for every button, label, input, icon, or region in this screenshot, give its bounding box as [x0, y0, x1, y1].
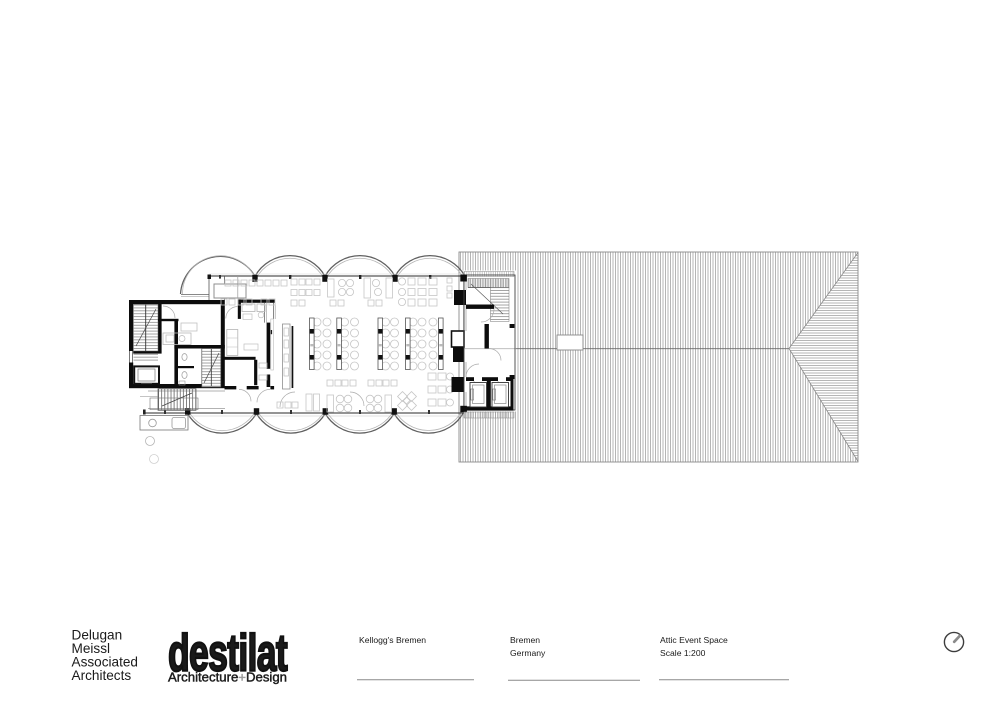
svg-text:Kellogg's Bremen: Kellogg's Bremen [359, 635, 426, 645]
svg-text:Attic Event Space: Attic Event Space [660, 635, 728, 645]
svg-text:Scale 1:200: Scale 1:200 [660, 648, 706, 658]
svg-text:Architects: Architects [72, 668, 132, 683]
svg-text:Bremen: Bremen [510, 635, 540, 645]
svg-text:Germany: Germany [510, 648, 546, 658]
svg-text:Architecture+Design: Architecture+Design [168, 671, 287, 685]
